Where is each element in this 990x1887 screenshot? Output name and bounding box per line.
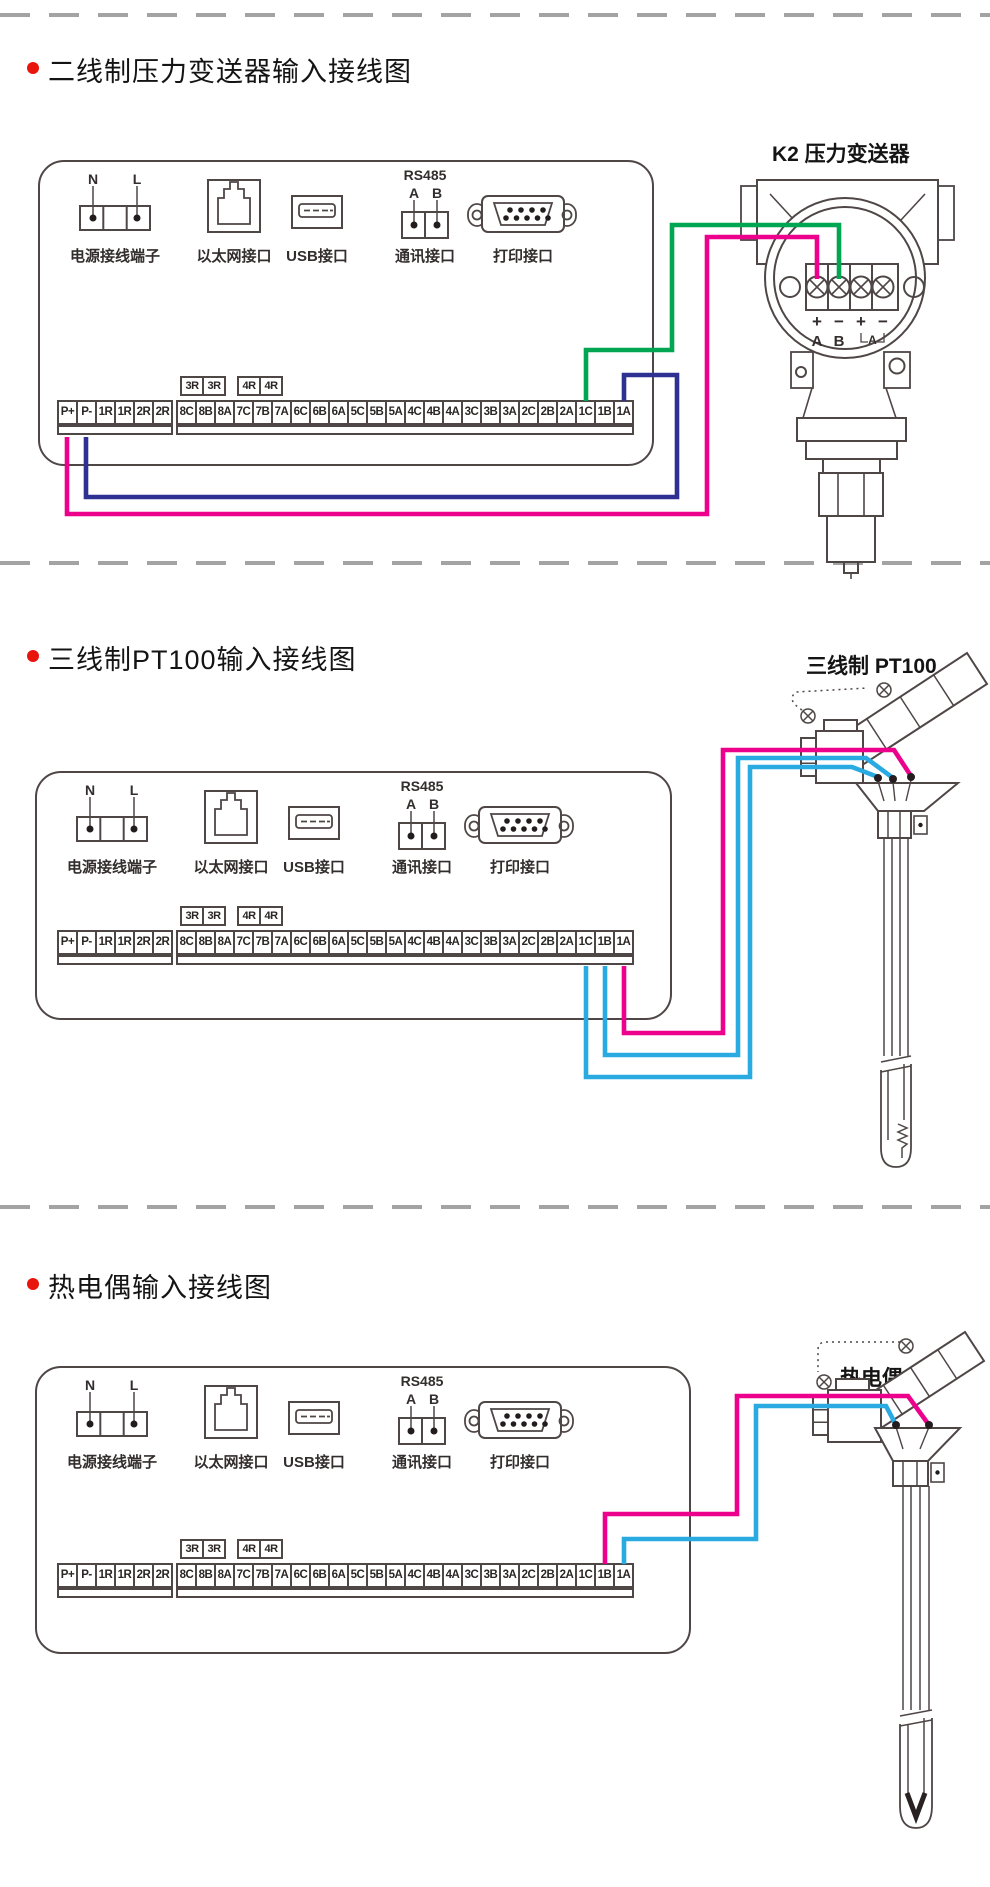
terminal-cell: 4A [442,1563,463,1588]
terminal-cell: 2A [556,930,577,955]
terminal-cell: 1R [95,930,116,955]
comm-port-label: 通讯接口 [395,247,455,265]
terminal-cell: 7C [233,930,254,955]
power-l-label: L [133,171,142,187]
terminal-cell: 7B [252,930,273,955]
terminal-cell: 3C [461,400,482,425]
terminal-cell: 4A [442,400,463,425]
terminal-cell: 8A [214,930,235,955]
terminal-cell: 7A [271,1563,292,1588]
terminal-cell: 5C [347,400,368,425]
input-terminal-strip: 8C8B8A7C7B7A6C6B6A5C5B5A4C4B4A3C3B3A2C2B… [176,930,634,965]
terminal-cell: 6B [309,930,330,955]
terminal-cell: 6A [328,400,349,425]
terminal-cell: 3C [461,1563,482,1588]
section1-title: 二线制压力变送器输入接线图 [48,50,412,89]
terminal-cell: 8C [176,1563,197,1588]
thermocouple-sensor [813,1332,984,1828]
terminal-cell: 3B [480,1563,501,1588]
terminal-cell: 1C [575,400,596,425]
ethernet-port-label: 以太网接口 [196,247,271,265]
dashed-separator-top [0,13,990,17]
terminal-cell: 1R [114,930,135,955]
recorder-panel-2 [35,771,672,1020]
terminal-cell: 6C [290,400,311,425]
terminal-cell: 2R [133,400,154,425]
terminal-cell: 7B [252,1563,273,1588]
recorder-panel-3 [35,1366,691,1654]
polarity-minus2: − [878,312,888,331]
terminal-cell: 2B [537,400,558,425]
tc-label: 热电偶 TC [840,1362,937,1392]
terminal-cell: 5B [366,930,387,955]
terminal-cell: 4C [404,400,425,425]
rs485-a-label: A [409,185,419,201]
terminal-cell: P+ [57,930,78,955]
relay-3r-block: 3R3R [180,376,226,396]
terminal-bracket-label: A [868,333,877,347]
relay-3r-block: 3R3R [180,906,226,926]
section3-title: 热电偶输入接线图 [48,1266,272,1305]
relay-4r-block: 4R4R [237,376,283,396]
terminal-cell: 2A [556,1563,577,1588]
usb-port-label: USB接口 [286,247,348,265]
terminal-cell: 4R [259,376,283,396]
terminal-cell: 7C [233,1563,254,1588]
rear-ports: N L RS485 A B 电源接线端子 以太网接口 USB接口 通讯接口 打印… [80,168,640,268]
terminal-cell: 3R [202,376,226,396]
transmitter-screw-terminals [807,277,894,298]
terminal-cell: 1B [594,400,615,425]
terminal-cell: 6A [328,930,349,955]
spring-element-icon [898,1124,907,1158]
terminal-cell: 6C [290,1563,311,1588]
terminal-cell: 4R [259,906,283,926]
section2-title: 三线制PT100输入接线图 [48,638,357,677]
terminal-cell: 3B [480,400,501,425]
terminal-cell: 4R [237,1539,261,1559]
terminal-cell: 2B [537,1563,558,1588]
terminal-cell: 4B [423,400,444,425]
polarity-minus1: − [834,312,844,331]
terminal-cell: 5A [385,930,406,955]
terminal-cell: 1A [613,930,634,955]
terminal-cell: P+ [57,1563,78,1588]
terminal-cell: P+ [57,400,78,425]
terminal-cell: 1R [95,1563,116,1588]
rear-ports [77,779,637,879]
terminal-cell: 8C [176,400,197,425]
terminal-cell: 3C [461,930,482,955]
terminal-cell: 4C [404,1563,425,1588]
terminal-cell: 7A [271,930,292,955]
terminal-cell: 2B [537,930,558,955]
terminal-cell: 1C [575,1563,596,1588]
terminal-cell: 2C [518,400,539,425]
relay-4r-block: 4R4R [237,906,283,926]
terminal-cell: 5A [385,400,406,425]
terminal-cell: 1B [594,1563,615,1588]
terminal-cell: 1R [114,400,135,425]
terminal-cell: 2A [556,400,577,425]
terminal-cell: 8A [214,1563,235,1588]
wiring-diagram-page: 二线制压力变送器输入接线图 三线制PT100输入接线图 热电偶输入接线图 K2 … [0,0,990,1887]
relay-4r-block: 4R4R [237,1539,283,1559]
terminal-cell: 3R [180,1539,204,1559]
terminal-cell: 4R [237,376,261,396]
terminal-cell: 5B [366,1563,387,1588]
terminal-cell: 6A [328,1563,349,1588]
input-terminal-strip: 8C8B8A7C7B7A6C6B6A5C5B5A4C4B4A3C3B3A2C2B… [176,400,634,435]
printer-port-label: 打印接口 [493,247,553,265]
terminal-cell: P- [76,1563,97,1588]
terminal-cell: 2R [152,1563,173,1588]
terminal-cell: 2R [133,930,154,955]
terminal-cell: 8A [214,400,235,425]
terminal-cell: 2R [152,400,173,425]
terminal-cell: 5C [347,1563,368,1588]
pressure-transmitter: + − + − A B A [741,180,954,579]
input-terminal-strip: 8C8B8A7C7B7A6C6B6A5C5B5A4C4B4A3C3B3A2C2B… [176,1563,634,1598]
terminal-cell: 8B [195,400,216,425]
terminal-cell: 6B [309,400,330,425]
power-terminal-strip: P+P-1R1R2R2R [57,930,173,965]
pt100-label: 三线制 PT100 [806,650,937,680]
terminal-cell: 1A [613,400,634,425]
terminal-cell: 3A [499,930,520,955]
terminal-cell: 4R [259,1539,283,1559]
terminal-cell: 3R [180,906,204,926]
tc-junction-icon [907,1793,925,1817]
terminal-cell: P- [76,400,97,425]
section3-bullet-icon [27,1278,39,1290]
relay-3r-block: 3R3R [180,1539,226,1559]
terminal-cell: 1A [613,1563,634,1588]
terminal-cell: 2R [152,930,173,955]
terminal-cell: 3R [202,906,226,926]
terminal-a-label: A [812,333,823,350]
terminal-cell: 8C [176,930,197,955]
pt100-terminal-dots [874,773,915,783]
terminal-cell: 1R [114,1563,135,1588]
rs485-label: RS485 [404,167,447,183]
polarity-plus2: + [856,312,866,331]
terminal-b-label: B [834,333,845,350]
terminal-cell: 2C [518,930,539,955]
terminal-cell: 5C [347,930,368,955]
dashed-separator-bottom [0,1205,990,1209]
transmitter-label: K2 压力变送器 [772,138,910,168]
terminal-cell: 3B [480,930,501,955]
rs485-b-label: B [432,185,442,201]
tc-terminal-dots [892,1421,933,1429]
power-n-label: N [88,171,98,187]
terminal-cell: 4B [423,1563,444,1588]
terminal-cell: 3R [180,376,204,396]
terminal-cell: 5B [366,400,387,425]
section2-bullet-icon [27,650,39,662]
terminal-cell: 5A [385,1563,406,1588]
polarity-plus1: + [812,312,822,331]
terminal-cell: 6C [290,930,311,955]
power-terminal-strip: P+P-1R1R2R2R [57,400,173,435]
terminal-cell: 1R [95,400,116,425]
terminal-cell: 2R [133,1563,154,1588]
dashed-separator-mid [0,561,990,565]
terminal-cell: 4B [423,930,444,955]
terminal-cell: 4A [442,930,463,955]
terminal-cell: 8B [195,1563,216,1588]
terminal-cell: 2C [518,1563,539,1588]
terminal-cell: 4C [404,930,425,955]
terminal-cell: 7B [252,400,273,425]
terminal-cell: 3A [499,1563,520,1588]
terminal-cell: P- [76,930,97,955]
pt100-sensor [792,653,987,1167]
power-terminal-strip: P+P-1R1R2R2R [57,1563,173,1598]
terminal-cell: 1B [594,930,615,955]
section1-bullet-icon [27,62,39,74]
terminal-cell: 8B [195,930,216,955]
rear-ports [77,1374,637,1474]
terminal-cell: 7C [233,400,254,425]
power-terminal-label: 电源接线端子 [70,247,160,265]
terminal-cell: 1C [575,930,596,955]
terminal-cell: 3A [499,400,520,425]
terminal-cell: 6B [309,1563,330,1588]
terminal-cell: 3R [202,1539,226,1559]
terminal-cell: 4R [237,906,261,926]
terminal-cell: 7A [271,400,292,425]
